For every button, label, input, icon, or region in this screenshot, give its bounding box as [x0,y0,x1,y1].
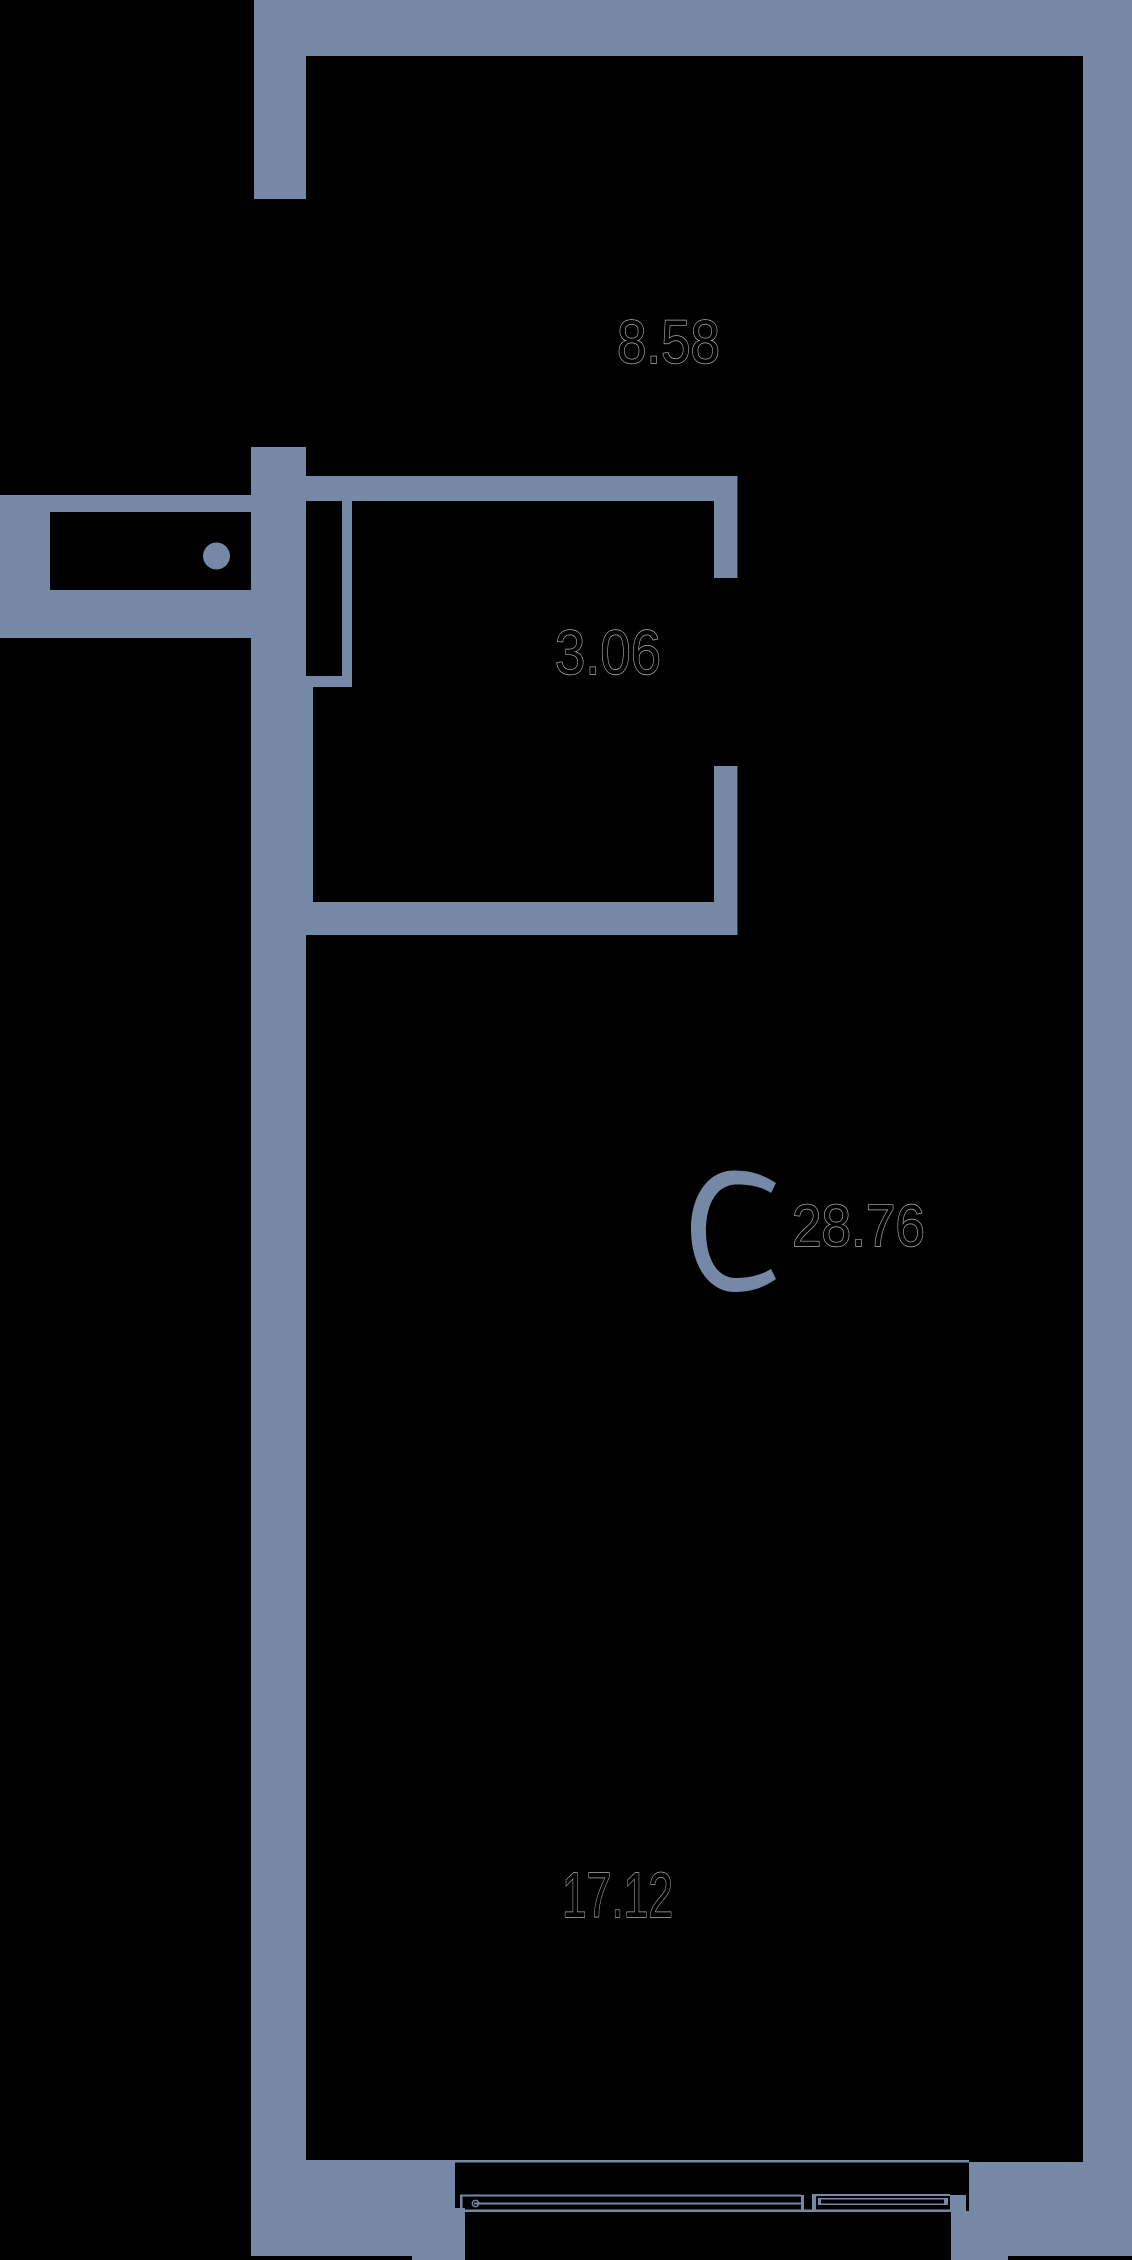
svg-text:8.58: 8.58 [617,308,720,376]
svg-text:28.76: 28.76 [792,1193,925,1259]
svg-text:17.12: 17.12 [562,1859,673,1931]
svg-text:3.06: 3.06 [555,618,661,688]
